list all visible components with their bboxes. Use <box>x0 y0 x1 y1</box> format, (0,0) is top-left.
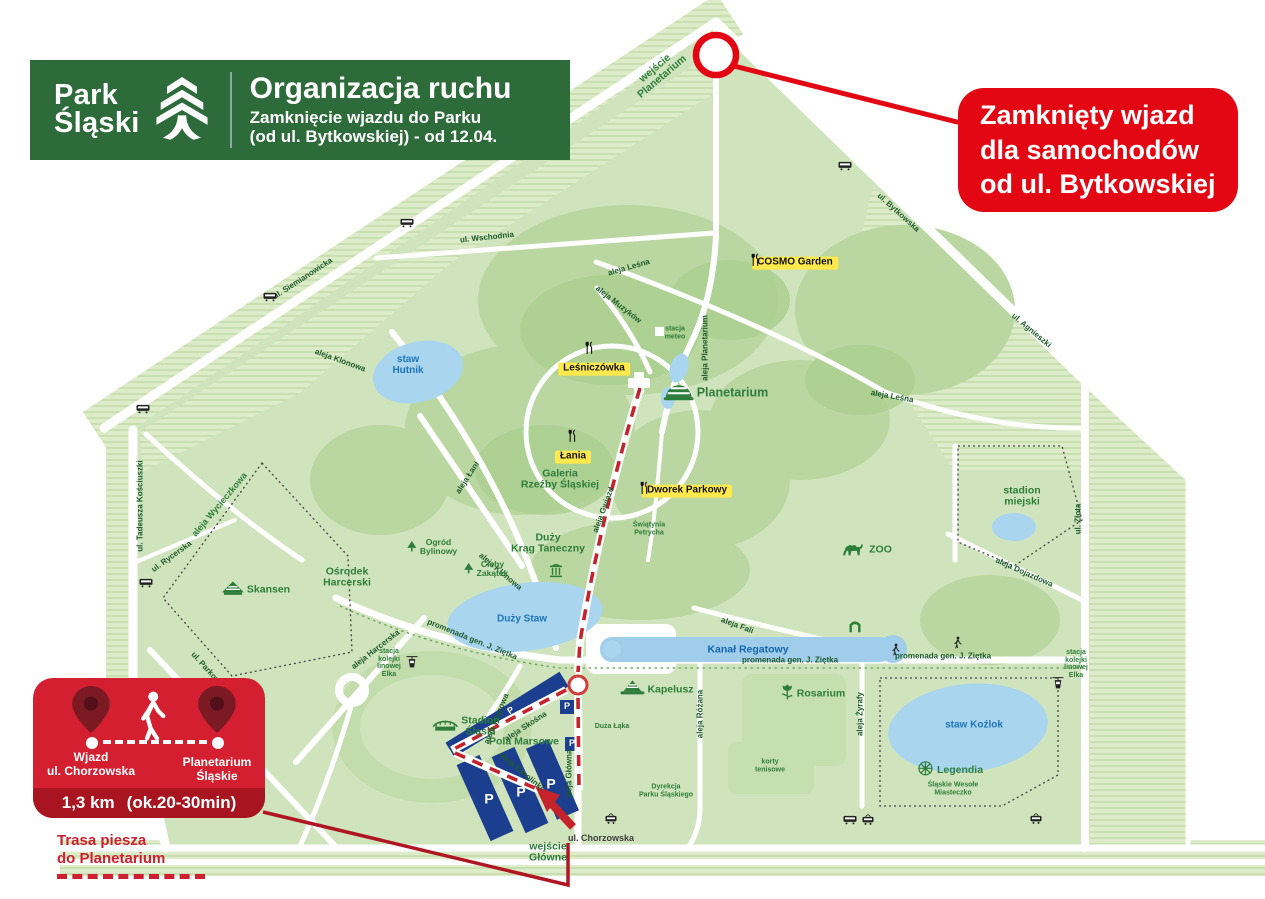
walk-duration: (ok.20-30min) <box>127 793 237 813</box>
callout-line-1: Zamknięty wjazd <box>980 98 1238 133</box>
destination-pin-icon <box>198 686 236 738</box>
origin-dot <box>86 737 98 749</box>
brand-line1: Park <box>54 82 140 110</box>
page-subtitle-1: Zamknięcie wjazdu do Parku <box>250 108 512 128</box>
walk-note-dashed-line <box>57 874 205 879</box>
walk-distance: 1,3 km <box>62 793 115 813</box>
walking-distance-panel: Wjazd ul. Chorzowska Planetarium Śląskie… <box>33 678 265 818</box>
walk-dashed-line <box>103 740 207 744</box>
divider <box>230 72 232 148</box>
park-slaski-tree-logo-icon <box>150 77 214 143</box>
walk-from-line2: ul. Chorzowska <box>36 765 146 779</box>
walk-to-line1: Planetarium <box>162 756 272 770</box>
walk-to-line2: Śląskie <box>162 770 272 784</box>
callout-line-2: dla samochodów <box>980 133 1238 168</box>
header-banner: Park Śląski Organizacja ruchu Zamknięcie… <box>30 60 570 160</box>
walk-distance-band: 1,3 km (ok.20-30min) <box>33 788 265 818</box>
traffic-map-poster: ul. Siemianowickaul. Wschodniaaleja Klon… <box>0 0 1265 899</box>
pedestrian-icon <box>137 691 167 746</box>
walk-note-line1: Trasa piesza <box>57 832 205 850</box>
brand-line2: Śląski <box>54 110 140 138</box>
callout-line-3: od ul. Bytkowskiej <box>980 167 1238 202</box>
walk-note-line2: do Planetarium <box>57 850 205 868</box>
page-subtitle-2: (od ul. Bytkowskiej) - od 12.04. <box>250 127 512 147</box>
origin-pin-icon <box>72 686 110 738</box>
destination-dot <box>212 737 224 749</box>
page-title: Organizacja ruchu <box>250 73 512 105</box>
closed-entrance-marker <box>696 35 736 75</box>
brand: Park Śląski <box>54 77 230 143</box>
walk-route-note: Trasa piesza do Planetarium <box>57 832 205 879</box>
walk-from-line1: Wjazd <box>36 751 146 765</box>
closed-entrance-callout: Zamknięty wjazd dla samochodów od ul. By… <box>958 88 1238 212</box>
